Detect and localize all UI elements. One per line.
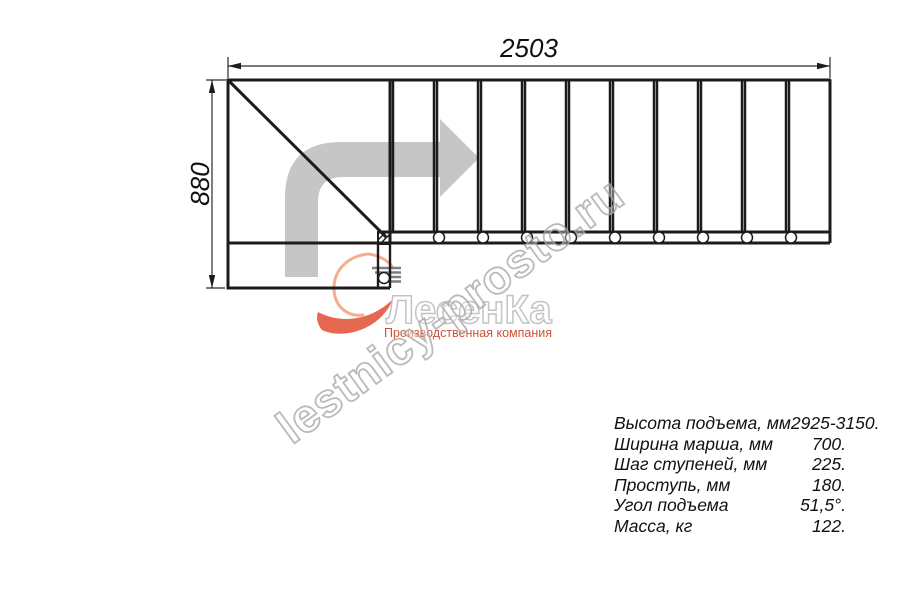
spec-label: Проступь, мм (614, 475, 730, 496)
baluster-circle (786, 232, 797, 243)
spec-value: 225. (812, 454, 846, 475)
spec-value: 700. (812, 434, 846, 455)
tread (701, 80, 742, 232)
spec-row-angle: Угол подъема 51,5°. (614, 495, 846, 516)
baluster-circle (566, 232, 577, 243)
baluster-circle (434, 232, 445, 243)
stair-drawing-page: { "drawing": { "top_dimension_label": "2… (0, 0, 900, 600)
tread (525, 80, 566, 232)
spec-label: Ширина марша, мм (614, 434, 773, 455)
spec-label: Масса, кг (614, 516, 692, 537)
spec-value: 51,5°. (800, 495, 846, 516)
baluster-circle (654, 232, 665, 243)
spec-label: Угол подъема (614, 495, 729, 516)
specifications-table: Высота подъема, мм 2925-3150. Ширина мар… (614, 413, 846, 537)
baluster-circle (742, 232, 753, 243)
baluster-circle (610, 232, 621, 243)
logo-tagline: Производственная компания (384, 326, 552, 340)
tread (481, 80, 522, 232)
top-dimension-label: 2503 (499, 33, 558, 63)
spec-row-march-width: Ширина марша, мм 700. (614, 434, 846, 455)
spec-row-step-pitch: Шаг ступеней, мм 225. (614, 454, 846, 475)
tread (789, 80, 830, 232)
spec-row-tread: Проступь, мм 180. (614, 475, 846, 496)
baluster-circle (478, 232, 489, 243)
spec-label: Высота подъема, мм (614, 413, 791, 434)
travel-direction-arrow (285, 119, 479, 277)
baluster-circle (522, 232, 533, 243)
spec-value: 2925-3150. (791, 413, 880, 434)
stringer-circles (434, 232, 797, 243)
spec-value: 122. (812, 516, 846, 537)
left-dimension-label: 880 (185, 162, 215, 206)
spec-row-height: Высота подъема, мм 2925-3150. (614, 413, 846, 434)
tread (745, 80, 786, 232)
tread (613, 80, 654, 232)
tread (657, 80, 698, 232)
tread (569, 80, 610, 232)
baluster-circle (698, 232, 709, 243)
spec-row-mass: Масса, кг 122. (614, 516, 846, 537)
spec-value: 180. (812, 475, 846, 496)
spec-label: Шаг ступеней, мм (614, 454, 767, 475)
